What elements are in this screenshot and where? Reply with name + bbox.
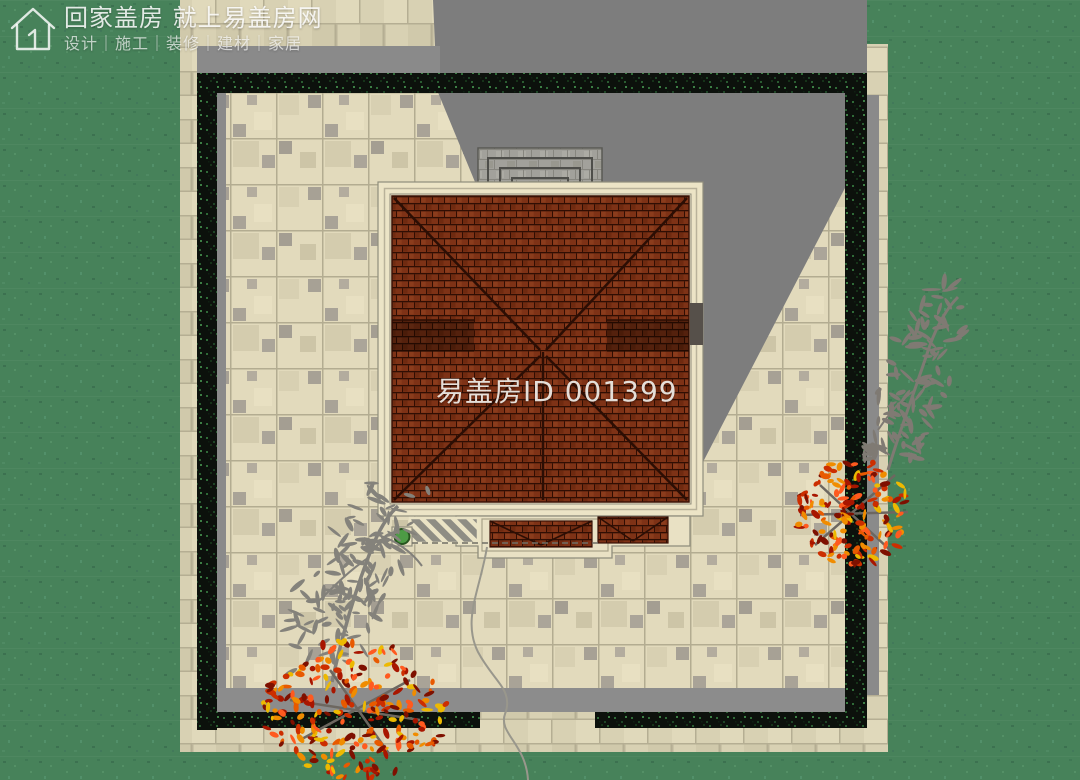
roof-wing-right <box>607 320 689 352</box>
site-plan-render: 回家盖房 就上易盖房网 设计｜施工｜装修｜建材｜家居 易盖房ID 001399 <box>0 0 1080 780</box>
perimeter-hedge-bottom-right <box>595 712 867 728</box>
pergola-slats <box>410 518 478 543</box>
perimeter-hedge-left <box>197 73 217 730</box>
grass-patch-top-right <box>866 0 888 44</box>
chimney-steps <box>478 148 602 186</box>
perimeter-hedge-top <box>197 73 867 93</box>
roof-wing-left <box>392 320 474 352</box>
hedge-shadow-top <box>197 46 440 74</box>
house-id-label: 易盖房ID 001399 <box>436 370 678 410</box>
house-roof <box>378 182 703 516</box>
hedge-shadow-left <box>217 93 226 712</box>
perimeter-hedge-right <box>845 73 867 728</box>
porch-roof-right <box>598 517 668 543</box>
roof-side-notch <box>690 303 703 345</box>
